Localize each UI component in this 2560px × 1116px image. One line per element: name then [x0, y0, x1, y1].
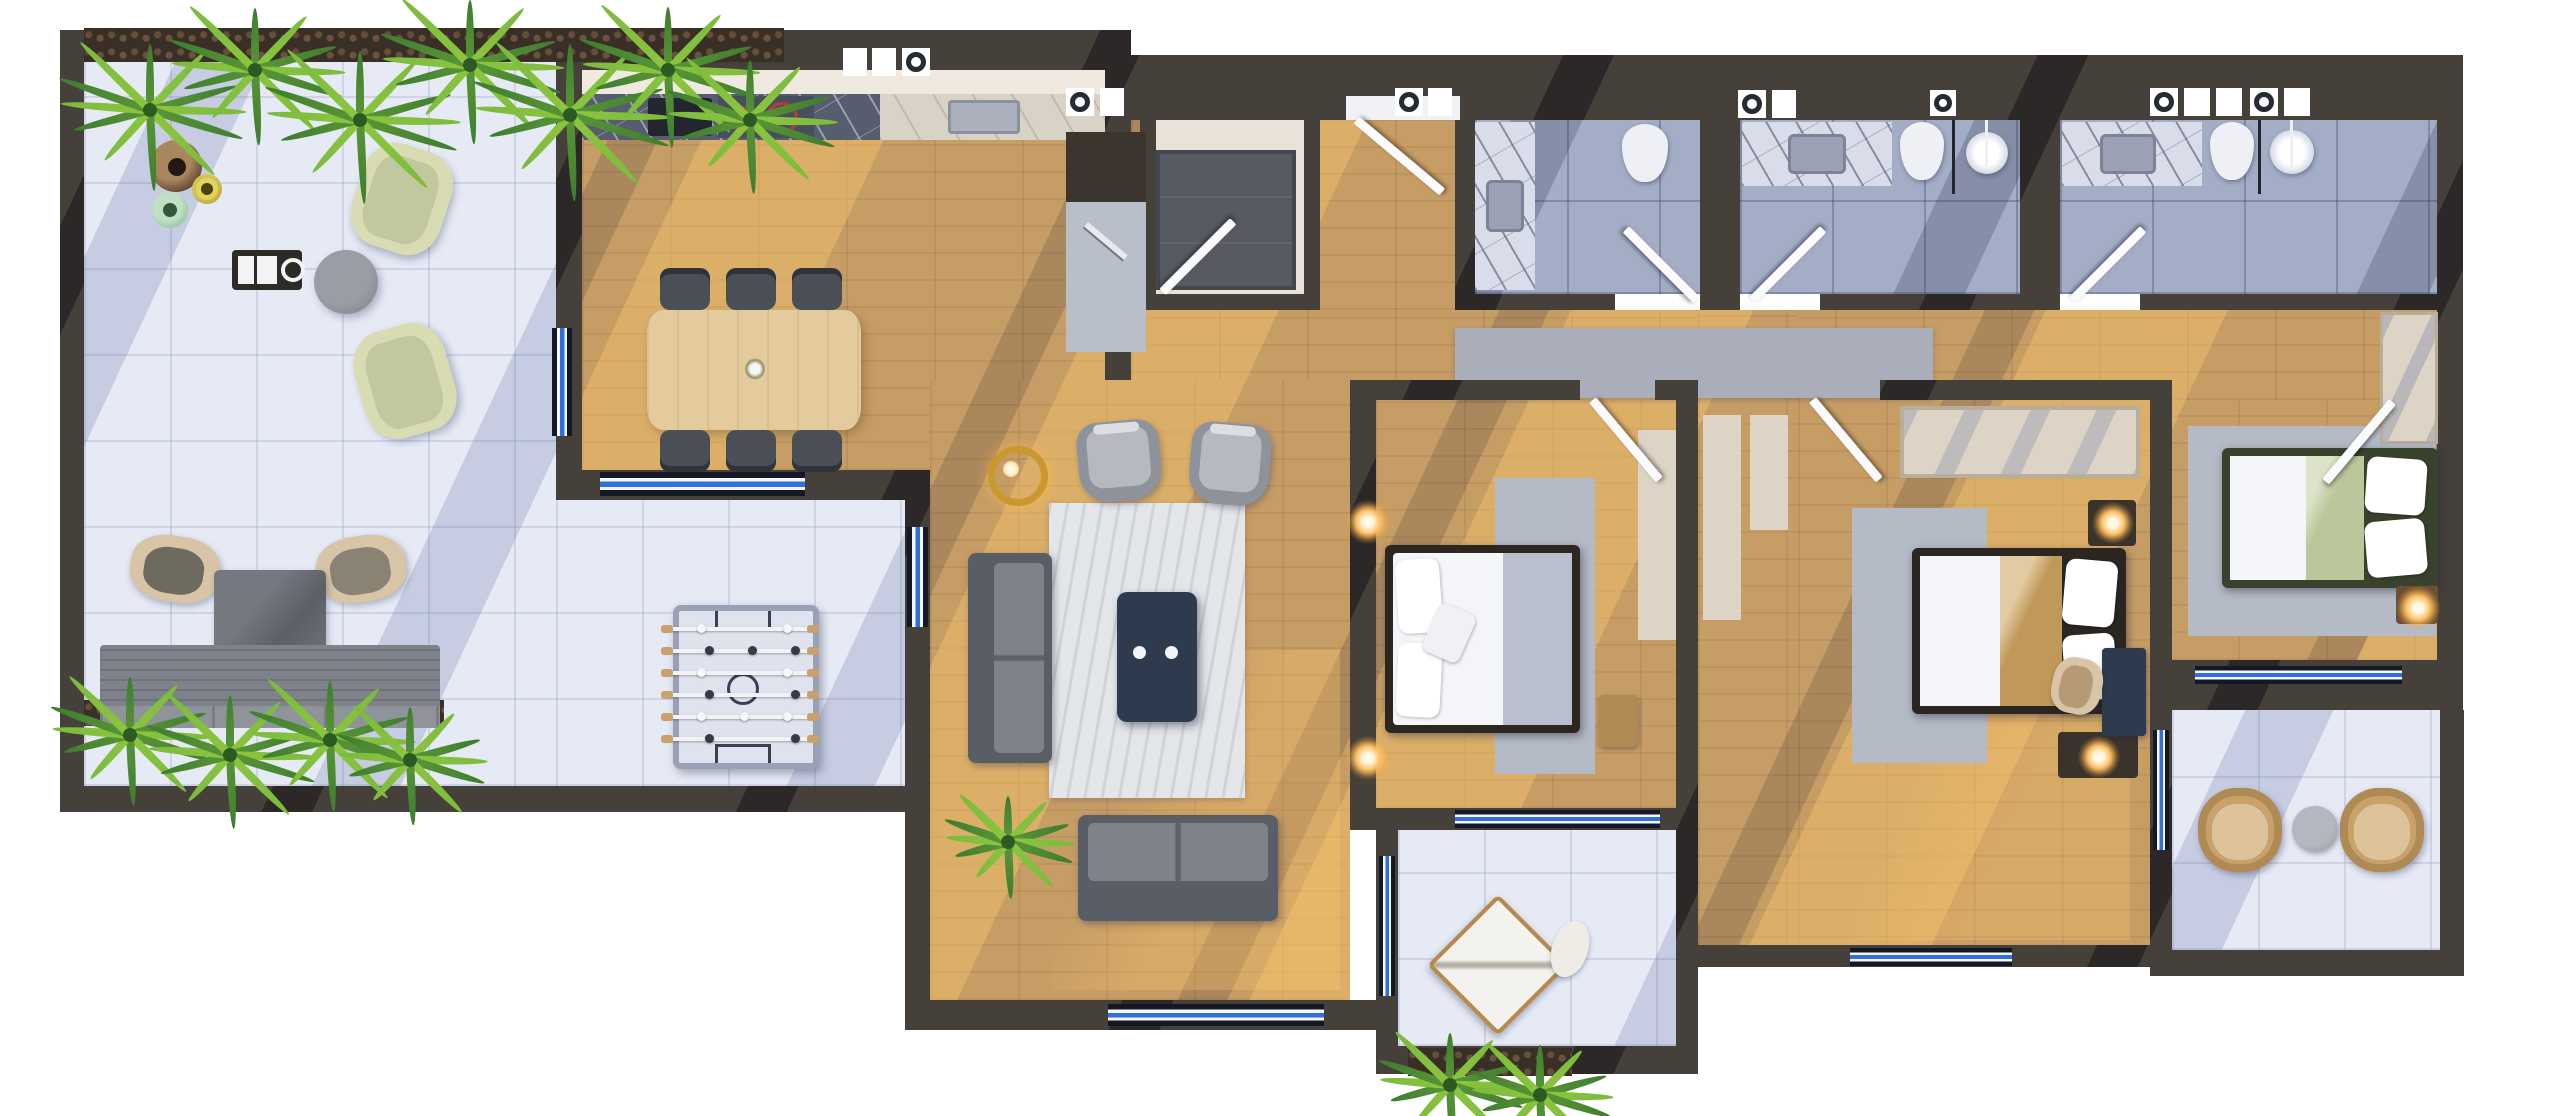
grill-panel: [257, 256, 277, 284]
sofa-left: [968, 553, 1052, 763]
vase-green-hole: [163, 203, 177, 217]
wall-closet-right: [1304, 120, 1320, 310]
foosball-player: [697, 712, 706, 721]
hall-panel: [1750, 415, 1788, 530]
grill-burner: [281, 258, 305, 282]
wicker-chair-1: [2198, 788, 2282, 872]
dining-chair: [660, 268, 710, 310]
wall-balc2-bottom: [2150, 950, 2464, 976]
foosball-player: [705, 734, 714, 743]
foosball-handle: [661, 625, 673, 633]
fern-core: [1533, 1088, 1547, 1102]
foosball-player: [705, 690, 714, 699]
floor-plan-render: [0, 0, 2560, 1116]
foosball-rod: [663, 671, 817, 675]
wicker-chair-2: [2340, 788, 2424, 872]
skylight-icon: [1738, 90, 1766, 118]
wall-living-left-lower: [905, 810, 930, 1030]
vent-icon: [2284, 88, 2310, 116]
fern-core: [403, 753, 417, 767]
bed2-sheet-white: [1920, 556, 2000, 706]
wall-bath2-left: [1720, 120, 1740, 310]
foosball-player: [791, 646, 800, 655]
foosball-player: [697, 624, 706, 633]
wall-bath2-bottom: [1820, 294, 2040, 310]
bath3-shower-pole: [2290, 120, 2293, 170]
counter-sink: [948, 100, 1020, 134]
vent-icon: [2184, 88, 2210, 116]
foosball-handle: [661, 713, 673, 721]
vase-brown-hole: [168, 158, 186, 176]
bedroom2-wardrobe: [1900, 406, 2140, 478]
window-dining-left: [552, 328, 572, 436]
wall-balc2-right: [2440, 710, 2464, 976]
foosball-rod: [663, 649, 817, 653]
foosball-handle: [807, 647, 819, 655]
foosball-goal-box: [715, 744, 771, 763]
wall-right-outer: [2437, 55, 2463, 710]
foosball-handle: [807, 669, 819, 677]
skylight-icon: [1395, 88, 1423, 116]
foosball-player: [783, 624, 792, 633]
dining-chair: [726, 268, 776, 310]
sofa-cushions: [1088, 823, 1268, 881]
cushion: [2212, 804, 2268, 860]
bath2-sink: [1788, 134, 1846, 174]
bed1-blanket-gray: [1495, 553, 1572, 725]
bedroom1-bench: [1598, 695, 1638, 747]
foosball-rod: [663, 715, 817, 719]
garden-bench: [100, 645, 440, 711]
bed1: [1385, 545, 1580, 733]
window-balcony1-left: [1379, 856, 1395, 996]
table-centerpiece: [745, 358, 765, 380]
kitchen-tall-unit: [1066, 132, 1146, 202]
vent-icon: [872, 48, 896, 76]
armchair-gray-2: [1187, 420, 1274, 509]
fern-core: [323, 733, 337, 747]
foosball-player: [783, 668, 792, 677]
window-balcony2-left: [2153, 730, 2169, 850]
foosball-handle: [807, 713, 819, 721]
bed3-sheet-white: [2230, 456, 2306, 580]
dining-chair: [660, 430, 710, 472]
cushion: [2056, 663, 2096, 711]
wall-bed2-right: [2150, 380, 2172, 710]
fern-core: [563, 108, 577, 122]
wall-closet-bottom: [1140, 294, 1320, 310]
foosball-player: [791, 734, 800, 743]
foosball-player: [697, 668, 706, 677]
skylight-icon: [1066, 88, 1094, 116]
nightstand-lamp-glow: [2396, 586, 2440, 630]
fern-core: [143, 103, 157, 117]
nightstand-lamp-glow: [2092, 502, 2134, 544]
kitchen-side-counter: [1066, 202, 1146, 352]
grill-panel: [238, 256, 254, 284]
balcony2-side-table: [2292, 806, 2338, 852]
cushion: [327, 544, 393, 599]
wall-lamp-glow: [1346, 736, 1390, 780]
vent-icon: [843, 48, 867, 76]
bed3-pillow: [2364, 456, 2428, 516]
coffee-table-navy: [1117, 592, 1197, 722]
wall-bath3-left: [2040, 120, 2060, 310]
wall-terrace-left: [60, 30, 84, 812]
skylight-icon: [902, 48, 930, 76]
cushion: [2354, 804, 2410, 860]
terrace-table-gray: [214, 570, 326, 650]
foosball-handle: [807, 625, 819, 633]
foosball-player: [705, 646, 714, 655]
foosball-player: [748, 646, 757, 655]
bed3-pillow: [2364, 517, 2429, 578]
wall-bed1-top: [1376, 380, 1580, 400]
vent-icon: [1772, 90, 1796, 118]
fern-core: [223, 748, 237, 762]
fern-core: [248, 63, 262, 77]
foosball-handle: [661, 669, 673, 677]
foosball-center-circle: [727, 673, 759, 705]
pendant-lamp-gold: [988, 446, 1048, 506]
window-dining-bottom: [600, 472, 805, 496]
fern-core: [353, 113, 367, 127]
vase-yellow-hole: [201, 183, 213, 195]
foosball-handle: [661, 647, 673, 655]
hall-panel: [1703, 415, 1741, 620]
dining-chair: [726, 430, 776, 472]
window-bedroom3-bottom: [2195, 666, 2402, 684]
hall-floor: [1698, 310, 1798, 965]
dining-chair: [792, 430, 842, 472]
window-bedroom1-bottom: [1455, 810, 1660, 828]
wall-balc1-right: [1676, 830, 1698, 1056]
wall-bath1-right: [1700, 120, 1720, 310]
vent-icon: [1100, 88, 1124, 116]
window-patio-living: [907, 527, 928, 627]
wall-bath2-right: [2020, 120, 2040, 310]
window-bedroom2-bottom: [1850, 948, 2012, 966]
wall-bath1-bottom: [1455, 294, 1615, 310]
cushion: [1198, 427, 1263, 494]
vent-icon: [2216, 88, 2242, 116]
closet-wardrobe: [1156, 150, 1296, 290]
bath2-shower-divider: [1952, 120, 1955, 194]
fern-core: [743, 113, 757, 127]
foosball-handle: [661, 691, 673, 699]
bath3-sink: [2100, 134, 2156, 174]
foosball-table: [673, 605, 819, 769]
skylight-icon: [1930, 90, 1956, 116]
wall-bed2-top: [1880, 380, 2150, 400]
foosball-rod: [663, 627, 817, 631]
wall-lamp-glow: [1346, 500, 1390, 544]
fern-core: [123, 728, 137, 742]
nightstand-lamp-glow: [2078, 736, 2120, 778]
wall-bath3-bottom: [2140, 294, 2437, 310]
fern-core: [463, 58, 477, 72]
vent-icon: [1428, 88, 1452, 116]
armchair-gray-1: [1075, 418, 1164, 505]
sofa-bottom: [1078, 815, 1278, 921]
bath3-shower-divider: [2258, 120, 2261, 194]
foosball-handle: [807, 735, 819, 743]
foosball-rod: [663, 737, 817, 741]
bath2-shower-pole: [1985, 120, 1988, 166]
wall-bed1-right: [1676, 400, 1698, 830]
sofa-cushions: [994, 563, 1044, 753]
dining-table: [647, 310, 861, 430]
bedroom3-wardrobe-mirror: [2380, 312, 2438, 444]
cushion: [360, 331, 450, 434]
pendant-bulb: [1003, 461, 1019, 477]
foosball-rod: [663, 693, 817, 697]
terrace-round-table: [314, 250, 378, 314]
table-decor-dot: [1133, 646, 1146, 659]
bedroom2-desk: [2102, 648, 2146, 736]
cutting-board-knife: [1084, 222, 1128, 260]
fern-core: [1001, 835, 1015, 849]
bath1-sink: [1486, 180, 1524, 232]
skylight-icon: [2250, 88, 2278, 116]
bed2-pillow: [2061, 558, 2119, 628]
foosball-player: [791, 690, 800, 699]
skylight-icon: [2150, 88, 2178, 116]
wall-bed1-top2: [1655, 380, 1698, 400]
fern-core: [1443, 1078, 1457, 1092]
table-decor-dot: [1165, 646, 1178, 659]
fern-core: [661, 63, 675, 77]
dining-chair: [792, 268, 842, 310]
cushion: [140, 543, 206, 598]
foosball-handle: [661, 735, 673, 743]
wall-patio-living: [905, 470, 930, 810]
foosball-handle: [807, 691, 819, 699]
window-living-bottom: [1108, 1004, 1324, 1026]
foosball-player: [740, 712, 749, 721]
wall-bath1-left: [1455, 120, 1475, 310]
foosball-player: [783, 712, 792, 721]
